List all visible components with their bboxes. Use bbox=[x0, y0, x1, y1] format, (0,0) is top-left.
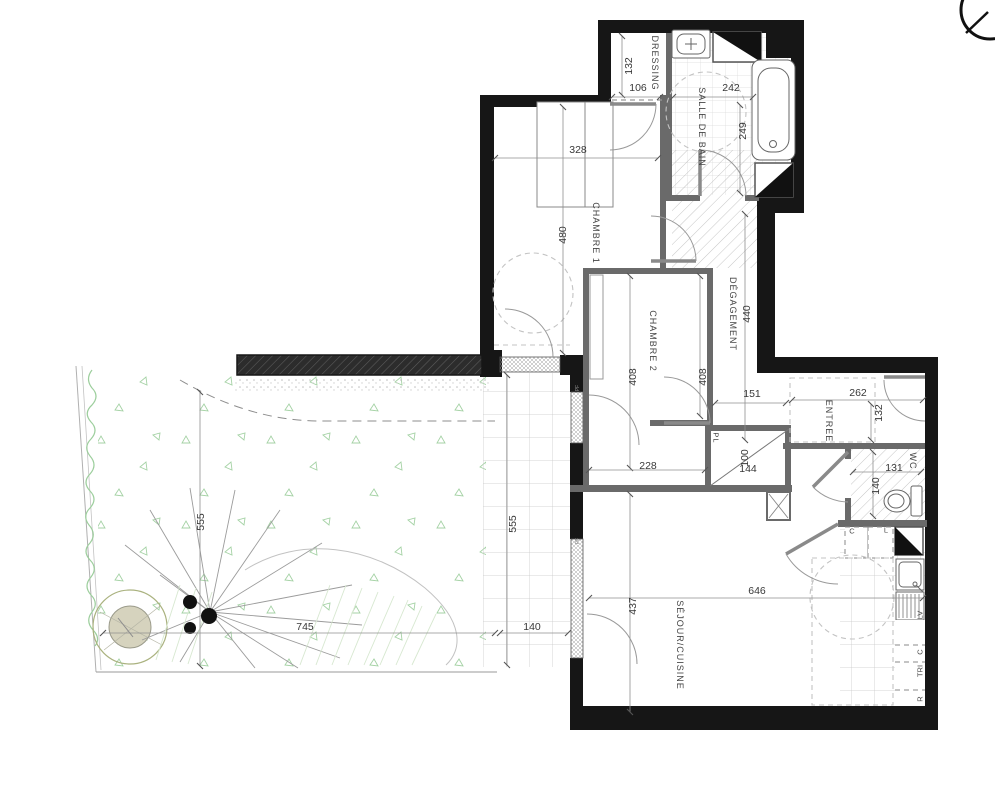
label-slot-c: C bbox=[849, 527, 854, 536]
label-sorting: TRI bbox=[916, 665, 925, 677]
dim-bedroom2-width: 228 bbox=[639, 460, 657, 472]
dim-closet-width: 144 bbox=[739, 463, 757, 475]
shaft-icon-3 bbox=[895, 527, 923, 555]
label-closet: PL bbox=[712, 432, 721, 443]
room-label-bedroom2: CHAMBRE 2 bbox=[648, 310, 658, 372]
room-label-bedroom1: CHAMBRE 1 bbox=[591, 202, 601, 264]
kitchen-sink-icon bbox=[896, 559, 924, 592]
dim-wc-width: 131 bbox=[885, 462, 903, 474]
living-window bbox=[571, 539, 583, 658]
label-fridge: R bbox=[916, 696, 925, 701]
shaft-icon-1 bbox=[713, 32, 761, 62]
label-dishwasher: LV bbox=[916, 611, 925, 620]
dim-bedroom1-width: 328 bbox=[569, 144, 587, 156]
shaft-icon-2 bbox=[755, 163, 793, 197]
dim-bedroom1-depth: 480 bbox=[557, 226, 569, 244]
room-label-entry: ENTREE bbox=[824, 400, 834, 443]
dim-dressing-opening: 106 bbox=[629, 82, 647, 94]
dim-entry-width: 262 bbox=[849, 387, 867, 399]
dim-garden-depth: 555 bbox=[195, 513, 207, 531]
garden-facade-wall bbox=[237, 355, 482, 375]
dim-living-width: 646 bbox=[748, 585, 766, 597]
dim-bedroom2-right: 408 bbox=[697, 368, 709, 386]
bathroom-sink-icon bbox=[672, 30, 710, 58]
dim-wc-depth: 140 bbox=[870, 477, 882, 495]
bedroom1-window bbox=[500, 357, 560, 372]
window-tag-1: PF bbox=[575, 385, 581, 391]
room-label-bathroom: SALLE DE BAIN bbox=[697, 87, 707, 167]
dim-dressing-depth: 132 bbox=[623, 57, 635, 75]
north-compass-icon bbox=[961, 0, 995, 39]
dim-terrace-width: 140 bbox=[523, 621, 541, 633]
room-label-dressing: DRESSING bbox=[650, 35, 660, 90]
dim-entry-depth: 132 bbox=[873, 404, 885, 422]
room-label-hallway: DÉGAGEMENT bbox=[728, 277, 738, 351]
dim-hallway-length: 440 bbox=[741, 305, 753, 323]
window-tag-2: PF bbox=[575, 538, 581, 544]
dim-hall-junction: 151 bbox=[743, 388, 761, 400]
dim-bedroom2-left: 408 bbox=[627, 368, 639, 386]
room-label-living: SÉJOUR/CUISINE bbox=[675, 600, 685, 690]
bedroom2-window bbox=[571, 392, 583, 443]
dim-garden-width: 745 bbox=[296, 621, 314, 633]
dim-bathroom-depth: 249 bbox=[737, 122, 749, 140]
gravel-strip bbox=[234, 377, 490, 391]
dim-bathroom-width: 242 bbox=[722, 82, 740, 94]
label-slot-l: L bbox=[884, 526, 888, 535]
dim-terrace-length: 555 bbox=[507, 515, 519, 533]
garden-area bbox=[76, 366, 497, 672]
floor-plan-canvas bbox=[0, 0, 995, 800]
bathtub-icon bbox=[752, 60, 795, 160]
hall-hatch bbox=[672, 150, 757, 268]
floor-plan: DRESSING SALLE DE BAIN CHAMBRE 1 CHAMBRE… bbox=[0, 0, 995, 800]
label-appliance-c: C bbox=[916, 649, 925, 654]
vent-box-icon bbox=[767, 492, 790, 520]
wardrobe-icon bbox=[590, 275, 603, 379]
room-label-wc: WC bbox=[908, 453, 918, 470]
dim-living-depth: 437 bbox=[627, 597, 639, 615]
